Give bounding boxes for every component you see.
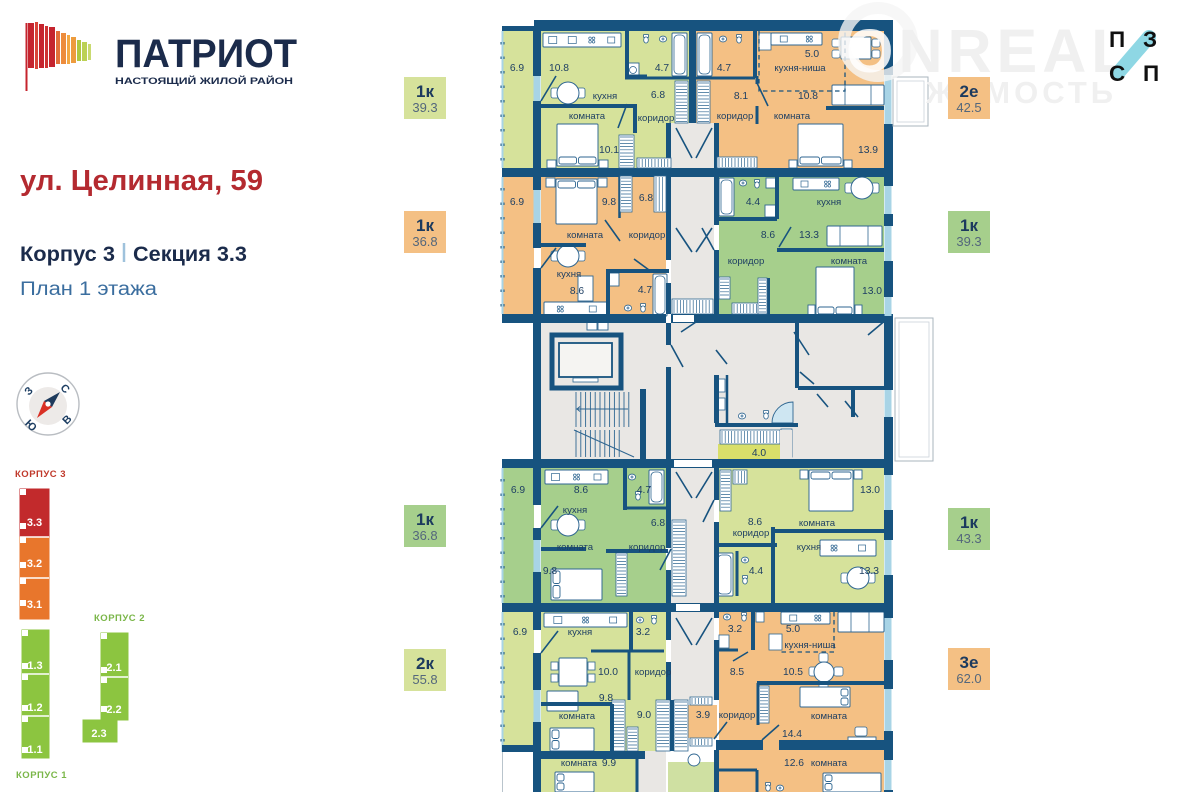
svg-text:коридор: коридор [638, 113, 675, 124]
svg-text:10.5: 10.5 [783, 667, 803, 678]
svg-text:2.2: 2.2 [106, 704, 121, 716]
svg-text:1.3: 1.3 [27, 660, 42, 672]
svg-text:6.8: 6.8 [651, 518, 666, 529]
svg-text:6.9: 6.9 [510, 63, 525, 74]
svg-text:3.1: 3.1 [27, 599, 42, 611]
svg-text:39.3: 39.3 [412, 100, 437, 115]
svg-text:комната: комната [567, 230, 604, 241]
svg-text:43.3: 43.3 [956, 531, 981, 546]
svg-text:комната: комната [569, 111, 606, 122]
svg-text:кухня: кухня [563, 505, 587, 516]
svg-text:4.4: 4.4 [749, 566, 764, 577]
svg-text:9.8: 9.8 [543, 566, 558, 577]
svg-text:8.6: 8.6 [761, 230, 776, 241]
svg-text:62.0: 62.0 [956, 671, 981, 686]
svg-text:3.2: 3.2 [728, 624, 743, 635]
svg-text:КОРПУС 1: КОРПУС 1 [16, 770, 67, 781]
svg-text:коридор: коридор [728, 256, 765, 267]
svg-text:1к: 1к [416, 82, 434, 101]
svg-text:ПАТРИОТ: ПАТРИОТ [115, 32, 297, 76]
svg-text:кухня-ниша: кухня-ниша [784, 640, 836, 651]
svg-text:коридор: коридор [629, 542, 666, 553]
svg-text:4.4: 4.4 [746, 197, 761, 208]
svg-text:комната: комната [774, 111, 811, 122]
svg-text:9.9: 9.9 [602, 758, 617, 769]
svg-text:3.2: 3.2 [27, 558, 42, 570]
svg-text:3.9: 3.9 [696, 710, 711, 721]
svg-text:1.1: 1.1 [27, 744, 42, 756]
svg-text:2е: 2е [960, 82, 979, 101]
svg-text:коридор: коридор [635, 667, 672, 678]
svg-text:1к: 1к [416, 216, 434, 235]
svg-text:З: З [1143, 27, 1157, 52]
svg-text:коридор: коридор [629, 230, 666, 241]
svg-text:8.1: 8.1 [734, 91, 749, 102]
svg-text:комната: комната [831, 256, 868, 267]
svg-text:4.7: 4.7 [655, 63, 670, 74]
svg-text:55.8: 55.8 [412, 672, 437, 687]
svg-text:5.0: 5.0 [786, 624, 801, 635]
svg-text:13.3: 13.3 [859, 566, 879, 577]
svg-text:План 1 этажа: План 1 этажа [20, 279, 157, 300]
svg-text:13.3: 13.3 [799, 230, 819, 241]
svg-text:кухня: кухня [797, 542, 821, 553]
svg-text:кухня: кухня [568, 627, 592, 638]
svg-text:6.9: 6.9 [510, 197, 525, 208]
svg-text:13.9: 13.9 [858, 145, 878, 156]
svg-text:6.9: 6.9 [511, 485, 526, 496]
svg-text:кухня: кухня [557, 269, 581, 280]
svg-text:5.0: 5.0 [805, 49, 820, 60]
svg-text:С: С [1109, 61, 1125, 86]
svg-text:12.6: 12.6 [784, 758, 804, 769]
svg-text:комната: комната [799, 518, 836, 529]
svg-text:6.8: 6.8 [651, 90, 666, 101]
svg-text:комната: комната [559, 711, 596, 722]
svg-text:кухня: кухня [593, 91, 617, 102]
svg-text:8.6: 8.6 [574, 485, 589, 496]
svg-text:комната: комната [557, 542, 594, 553]
svg-text:4.7: 4.7 [717, 63, 732, 74]
svg-text:комната: комната [811, 758, 848, 769]
svg-text:кухня: кухня [817, 197, 841, 208]
svg-text:2к: 2к [416, 654, 434, 673]
svg-text:8.6: 8.6 [570, 286, 585, 297]
svg-text:1.2: 1.2 [27, 702, 42, 714]
svg-text:комната: комната [561, 758, 598, 769]
svg-text:9.0: 9.0 [637, 710, 652, 721]
svg-text:комната: комната [811, 711, 848, 722]
svg-text:КОРПУС 3: КОРПУС 3 [15, 469, 66, 480]
svg-text:9.8: 9.8 [599, 693, 614, 704]
svg-text:2.3: 2.3 [91, 728, 106, 740]
svg-text:14.4: 14.4 [782, 729, 802, 740]
svg-text:10.1: 10.1 [599, 145, 619, 156]
svg-text:Корпус 3: Корпус 3 [20, 243, 115, 266]
svg-text:6.8: 6.8 [639, 193, 654, 204]
svg-text:4.7: 4.7 [638, 285, 653, 296]
svg-text:10.8: 10.8 [798, 91, 818, 102]
svg-text:1к: 1к [960, 513, 978, 532]
svg-text:1к: 1к [960, 216, 978, 235]
svg-text:коридор: коридор [717, 111, 754, 122]
svg-text:кухня-ниша: кухня-ниша [774, 63, 826, 74]
svg-text:3е: 3е [960, 653, 979, 672]
svg-text:6.9: 6.9 [513, 627, 528, 638]
svg-text:39.3: 39.3 [956, 234, 981, 249]
svg-text:3.3: 3.3 [27, 517, 42, 529]
svg-text:10.8: 10.8 [549, 63, 569, 74]
svg-text:4.0: 4.0 [752, 448, 767, 459]
svg-text:36.8: 36.8 [412, 528, 437, 543]
svg-text:4.7: 4.7 [637, 485, 652, 496]
svg-text:42.5: 42.5 [956, 100, 981, 115]
svg-text:коридор: коридор [733, 528, 770, 539]
svg-text:1к: 1к [416, 510, 434, 529]
svg-text:НАСТОЯЩИЙ ЖИЛОЙ РАЙОН: НАСТОЯЩИЙ ЖИЛОЙ РАЙОН [115, 75, 293, 87]
svg-text:КОРПУС 2: КОРПУС 2 [94, 613, 145, 624]
svg-text:36.8: 36.8 [412, 234, 437, 249]
svg-text:П: П [1109, 27, 1125, 52]
svg-text:Секция 3.3: Секция 3.3 [133, 243, 247, 266]
svg-text:коридор: коридор [719, 710, 756, 721]
svg-text:2.1: 2.1 [106, 662, 121, 674]
svg-text:8.6: 8.6 [748, 517, 763, 528]
svg-text:10.0: 10.0 [598, 667, 618, 678]
svg-text:9.8: 9.8 [602, 197, 617, 208]
svg-text:ул. Целинная, 59: ул. Целинная, 59 [20, 165, 263, 197]
svg-text:13.0: 13.0 [860, 485, 880, 496]
svg-text:13.0: 13.0 [862, 286, 882, 297]
svg-text:8.5: 8.5 [730, 667, 745, 678]
svg-text:П: П [1143, 61, 1159, 86]
svg-text:3.2: 3.2 [636, 627, 651, 638]
